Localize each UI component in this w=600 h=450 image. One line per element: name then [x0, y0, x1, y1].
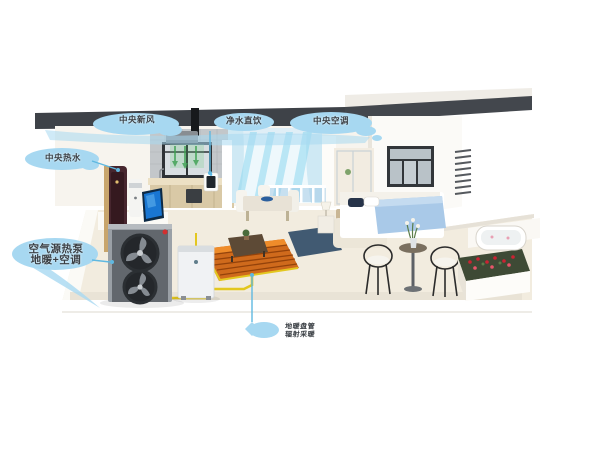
water-softener	[129, 179, 142, 217]
heat-pump-house-diagram: 中央新风 净水直饮 中央空调 中央热水 空气源热泵 地暖+空调 地暖盘管 辐射采…	[0, 0, 600, 450]
callout-fresh-air: 中央新风	[119, 116, 155, 125]
callout-central-ac: 中央空调	[313, 117, 349, 126]
label-floor-heating-line2: 辐射采暖	[285, 331, 316, 339]
label-hot-water: 中央热水	[45, 154, 81, 163]
heat-pump-outdoor-unit	[100, 224, 184, 308]
house-illustration	[0, 0, 600, 450]
label-floor-heating-line1: 地暖盘管	[285, 324, 316, 332]
callout-hot-water: 中央热水	[45, 154, 81, 163]
bedroom-window	[387, 146, 434, 187]
hydro-module	[172, 246, 220, 303]
flower-planter	[458, 249, 530, 301]
bathtub	[476, 226, 526, 250]
callout-floor-heating: 地暖盘管 辐射采暖	[285, 324, 315, 339]
tv-screen	[142, 188, 164, 222]
callout-drinking-water: 净水直饮	[226, 117, 262, 126]
callout-heat-pump: 空气源热泵 地暖+空调	[29, 244, 84, 266]
label-heat-pump-line2: 地暖+空调	[29, 255, 84, 266]
label-drinking-water: 净水直饮	[226, 117, 262, 126]
water-dispenser	[204, 173, 218, 191]
wall-column-left	[222, 140, 232, 208]
label-fresh-air: 中央新风	[119, 116, 155, 125]
label-central-ac: 中央空调	[313, 117, 349, 126]
